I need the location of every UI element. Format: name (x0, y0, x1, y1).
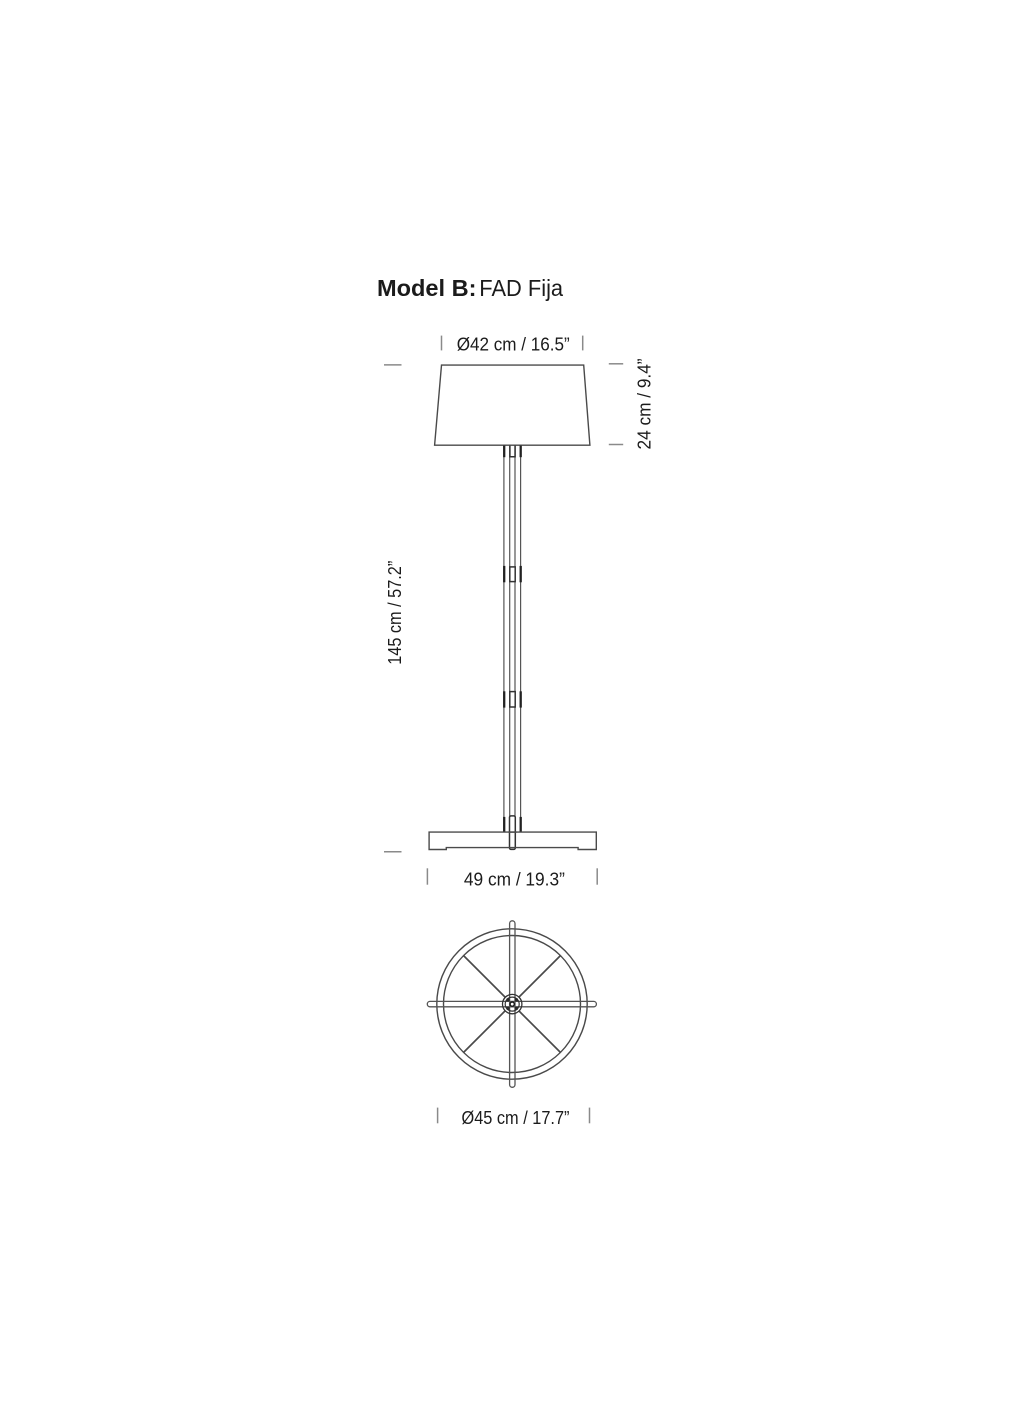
svg-text:FAD Fija: FAD Fija (479, 275, 563, 301)
svg-text:Ø45 cm / 17.7”: Ø45 cm / 17.7” (462, 1107, 570, 1128)
svg-text:Model B:: Model B: (377, 275, 477, 301)
svg-text:24 cm / 9.4”: 24 cm / 9.4” (634, 358, 655, 449)
svg-text:145 cm / 57.2”: 145 cm / 57.2” (384, 561, 405, 665)
svg-text:Ø42 cm / 16.5”: Ø42 cm / 16.5” (457, 333, 570, 354)
svg-text:49 cm / 19.3”: 49 cm / 19.3” (464, 869, 565, 890)
